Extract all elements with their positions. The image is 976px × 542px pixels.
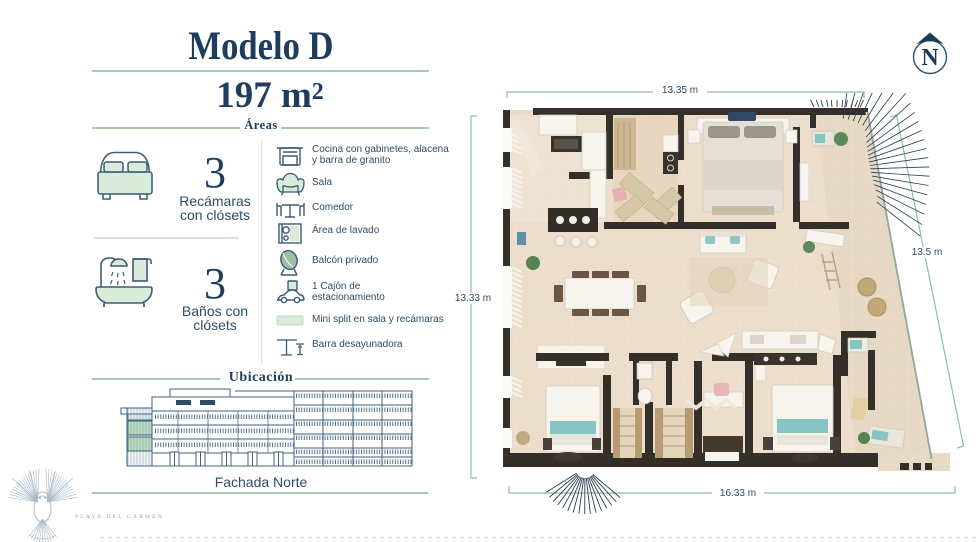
svg-text:N: N	[921, 45, 939, 71]
